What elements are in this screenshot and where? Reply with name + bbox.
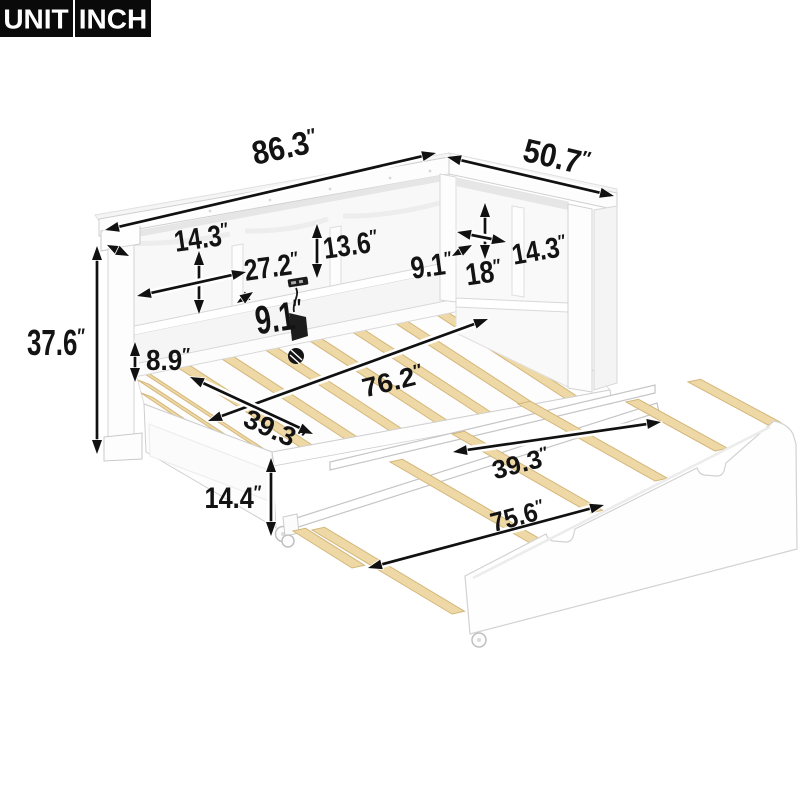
svg-text:INCH: INCH [79, 4, 147, 35]
svg-text:37.6″: 37.6″ [27, 322, 85, 363]
svg-text:14.4″: 14.4″ [205, 482, 262, 515]
svg-text:UNIT: UNIT [3, 4, 68, 35]
